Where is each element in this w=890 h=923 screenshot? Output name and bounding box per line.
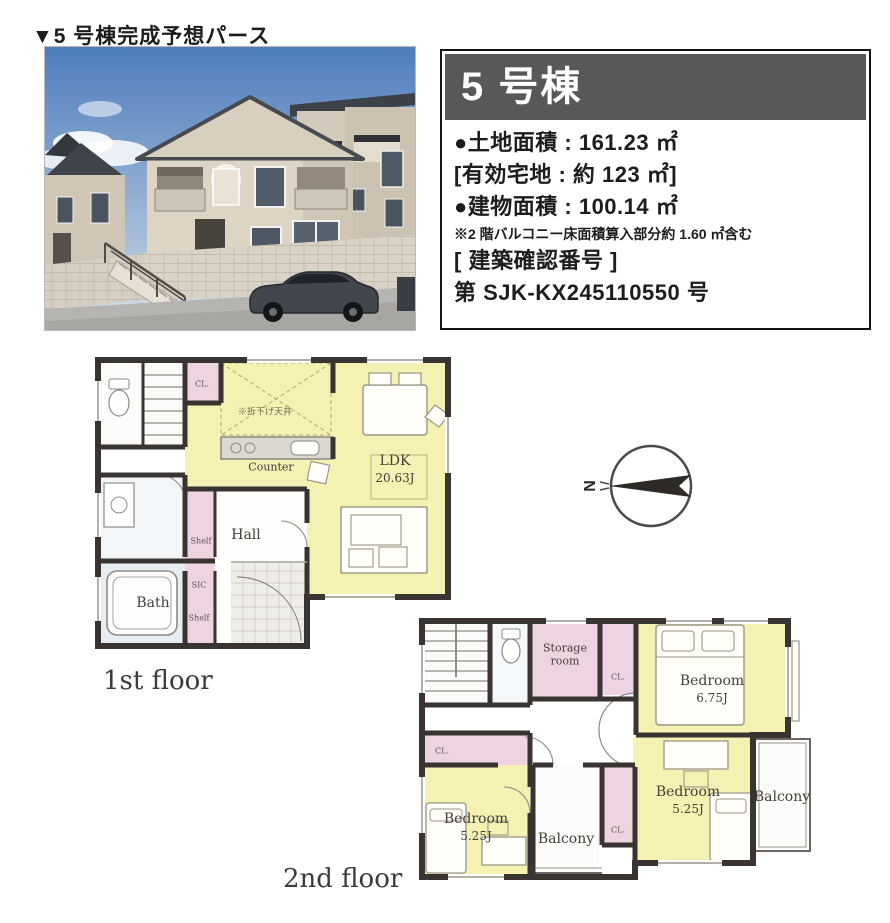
balcony-note-line: ※2 階バルコニー床面積算入部分約 1.60 ㎡含む bbox=[454, 223, 857, 245]
house-rendering-image bbox=[45, 47, 415, 330]
confirm-number-value: 第 SJK-KX245110550 号 bbox=[454, 277, 857, 309]
building-area-line: ●建物面積 : 100.14 ㎡ bbox=[454, 191, 857, 223]
room-label-hall: Hall bbox=[231, 527, 261, 543]
confirm-number-label: [ 建築確認番号 ] bbox=[454, 245, 857, 277]
land-area-line: ●土地面積 : 161.23 ㎡ bbox=[454, 127, 857, 159]
effective-land-line: [有効宅地 : 約 123 ㎡] bbox=[454, 159, 857, 191]
floor-plan-2f: Storage room CL. Bedroom 6.75J CL. Bedro… bbox=[418, 617, 816, 881]
room-label-ceiling-note: ※折下げ天井 bbox=[238, 405, 292, 418]
room-label-balcony-center: Balcony bbox=[538, 831, 594, 847]
compass-north-label: N bbox=[582, 480, 600, 492]
room-label-bath: Bath bbox=[136, 595, 169, 611]
building-number-header: 5 号棟 bbox=[445, 54, 866, 120]
room-label-closet-mid: CL. bbox=[611, 826, 625, 835]
room-label-bedroom-left: Bedroom bbox=[444, 811, 508, 827]
floor1-caption: 1st floor bbox=[103, 666, 213, 696]
room-label-closet-1f: CL. bbox=[195, 380, 209, 389]
room-label-shelf-upper: Shelf bbox=[191, 537, 212, 546]
room-label-balcony-right: Balcony bbox=[754, 789, 810, 805]
floor2-caption: 2nd floor bbox=[283, 864, 402, 894]
floor-plan-1f: CL. ※折下げ天井 Counter LDK 20.63J Hall Shelf… bbox=[95, 357, 451, 649]
room-label-bedroom-left-size: 5.25J bbox=[460, 829, 492, 843]
house-rendering-illustration bbox=[45, 47, 415, 330]
room-label-counter: Counter bbox=[248, 461, 293, 474]
room-label-storage: Storage room bbox=[534, 642, 596, 667]
compass-drawing bbox=[583, 438, 753, 538]
room-label-ldk: LDK bbox=[380, 453, 411, 469]
room-label-closet-left: CL. bbox=[435, 747, 449, 756]
room-label-bedroom-right-size: 5.25J bbox=[672, 802, 704, 816]
room-label-sic: SIC bbox=[192, 581, 207, 590]
room-label-ldk-size: 20.63J bbox=[375, 471, 414, 485]
real-estate-flyer: ▼5 号棟完成予想パース bbox=[0, 0, 890, 923]
info-box-body: ●土地面積 : 161.23 ㎡ [有効宅地 : 約 123 ㎡] ●建物面積 … bbox=[442, 123, 869, 309]
compass: N bbox=[583, 438, 753, 538]
info-box: 5 号棟 ●土地面積 : 161.23 ㎡ [有効宅地 : 約 123 ㎡] ●… bbox=[440, 49, 871, 330]
room-label-bedroom-main: Bedroom bbox=[680, 673, 744, 689]
room-label-bedroom-right: Bedroom bbox=[656, 784, 720, 800]
room-label-shelf-lower: Shelf bbox=[189, 614, 210, 623]
room-label-bedroom-main-size: 6.75J bbox=[696, 691, 728, 705]
page-title: ▼5 号棟完成予想パース bbox=[32, 20, 270, 50]
room-label-closet-top: CL. bbox=[611, 673, 625, 682]
